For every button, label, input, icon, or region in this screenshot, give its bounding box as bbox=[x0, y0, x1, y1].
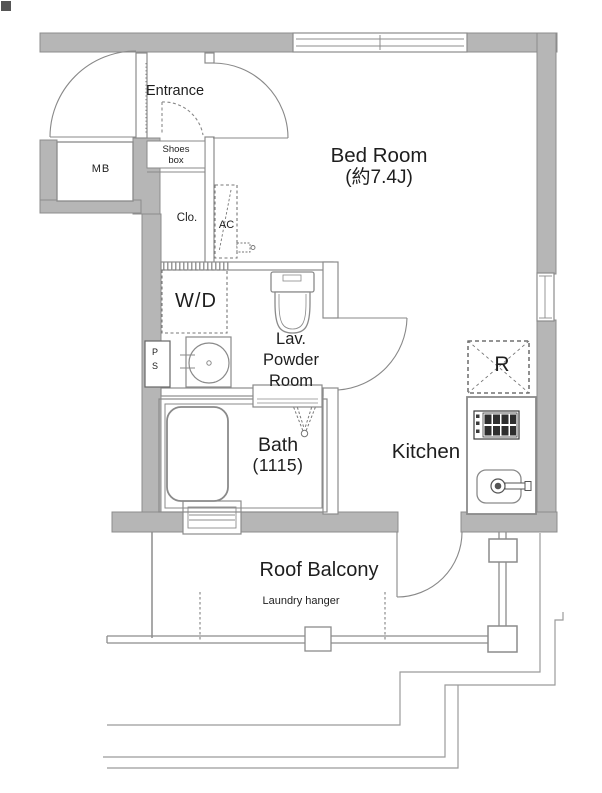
wall-bottom-3 bbox=[461, 512, 557, 532]
balcony bbox=[107, 532, 517, 652]
entrance-inner-door bbox=[162, 102, 203, 135]
wall-right-lower bbox=[537, 320, 556, 532]
balcony-post-bottom bbox=[488, 626, 517, 652]
label-bath-size: (1115) bbox=[237, 455, 319, 475]
label-shoes-box: Shoes box bbox=[158, 144, 194, 167]
corner-artifact bbox=[1, 1, 11, 11]
entrance-door bbox=[50, 51, 136, 137]
label-bath: Bath bbox=[237, 434, 319, 456]
wall-top-left bbox=[40, 33, 295, 52]
wall-powder-right bbox=[323, 262, 338, 318]
label-laundry-hanger: Laundry hanger bbox=[248, 595, 354, 608]
label-bed-room-size: (約7.4J) bbox=[298, 167, 460, 189]
window-bath bbox=[183, 501, 241, 534]
floor-plan: Entrance Shoes box MB Clo. AC Bed Room (… bbox=[0, 0, 602, 793]
toilet bbox=[271, 272, 314, 333]
window-top bbox=[293, 33, 467, 52]
balcony-door bbox=[397, 532, 462, 597]
label-washer-dryer: W/D bbox=[155, 290, 237, 313]
wall-hall-top-stub bbox=[205, 53, 214, 63]
label-lavatory-powder-room: Lav. Powder Room bbox=[260, 329, 322, 391]
balcony-step bbox=[305, 627, 331, 651]
label-entrance: Entrance bbox=[130, 83, 220, 100]
wall-bottom-1 bbox=[112, 512, 184, 532]
wall-bath-right bbox=[323, 388, 338, 514]
window-right bbox=[537, 273, 554, 321]
label-refrigerator-space: R bbox=[489, 353, 515, 377]
wall-mb-bottom bbox=[40, 200, 141, 213]
floor-plan-drawing bbox=[0, 0, 602, 793]
label-air-conditioner: AC bbox=[213, 219, 240, 232]
powder-room-door bbox=[333, 318, 407, 390]
washbasin bbox=[180, 337, 231, 387]
balcony-post-top bbox=[489, 539, 517, 562]
label-roof-balcony: Roof Balcony bbox=[238, 559, 400, 582]
label-pipe-space: P S bbox=[148, 345, 162, 374]
wall-hall-bedroom bbox=[205, 137, 214, 268]
label-bed-room: Bed Room bbox=[298, 144, 460, 168]
label-meter-box: MB bbox=[83, 163, 119, 176]
label-closet: Clo. bbox=[165, 212, 209, 225]
stove bbox=[474, 411, 519, 439]
wall-bottom-2 bbox=[241, 512, 398, 532]
wall-powder-top bbox=[161, 262, 333, 270]
label-kitchen: Kitchen bbox=[380, 440, 472, 464]
hall-bedroom-door bbox=[213, 63, 288, 138]
bathtub bbox=[167, 407, 228, 501]
wall-right-upper bbox=[537, 33, 556, 274]
